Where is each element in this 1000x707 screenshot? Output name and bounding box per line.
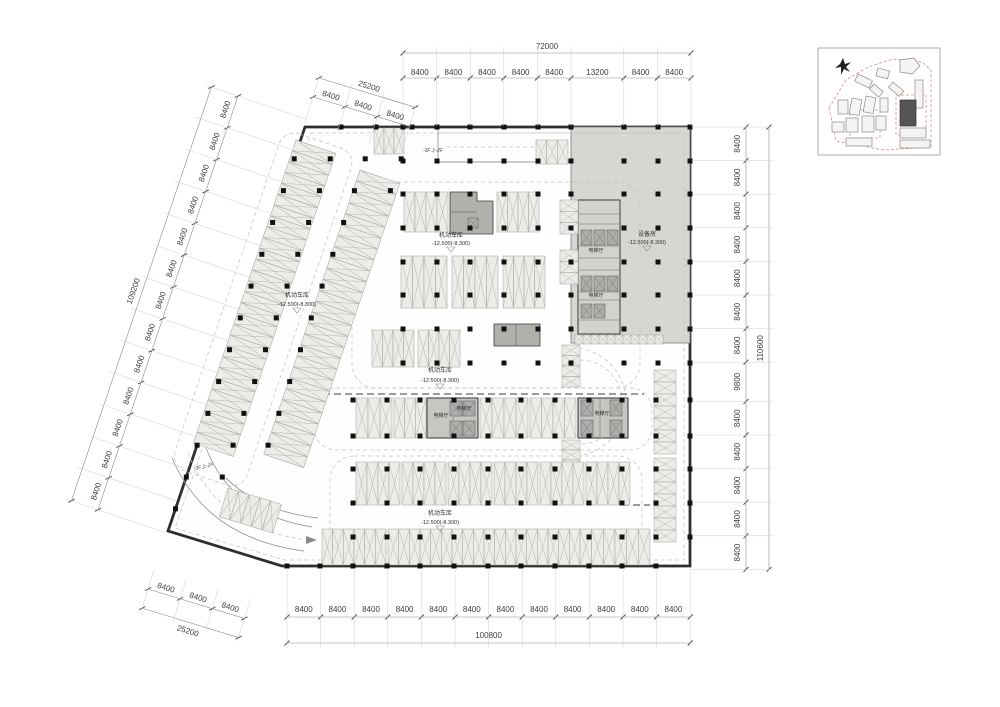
column	[401, 226, 406, 231]
column	[486, 434, 491, 439]
column	[536, 159, 541, 164]
dim-label: 8400	[733, 510, 742, 528]
column	[587, 501, 592, 506]
dim-label: 8400	[733, 543, 742, 561]
column	[519, 398, 524, 403]
column	[341, 220, 346, 225]
column	[656, 159, 661, 164]
dim-label: 8400	[411, 68, 429, 77]
column	[385, 501, 390, 506]
dim-label: 8400	[733, 476, 742, 494]
column	[418, 535, 423, 540]
garage-left-label: 机动车库	[285, 291, 309, 299]
column	[688, 467, 693, 472]
dim-label: 8400	[295, 605, 313, 614]
dim-label: 8400	[478, 68, 496, 77]
dim-label: 8400	[362, 605, 380, 614]
column	[569, 327, 574, 332]
dim-label: 8400	[733, 302, 742, 320]
dim-label: 8400	[733, 442, 742, 460]
elevator-hall-label-3: 电梯厅	[433, 412, 448, 419]
dim-label: 8400	[497, 605, 515, 614]
column	[468, 159, 473, 164]
elevator-hall-label-4: 电梯厅	[456, 405, 471, 412]
elevator-hall-label-1: 电梯厅	[588, 247, 603, 254]
garage-lower-label: 机动车库	[428, 509, 452, 517]
column	[620, 467, 625, 472]
elevator-hall-label-5: 电梯厅	[594, 410, 609, 417]
column	[536, 361, 541, 366]
column	[688, 327, 693, 332]
column	[536, 260, 541, 265]
utility-room-mid	[494, 324, 540, 346]
column	[622, 226, 627, 231]
column	[553, 535, 558, 540]
floorplan-canvas: 8400840084008400840013200840084007200084…	[0, 0, 1000, 707]
column	[401, 192, 406, 197]
garage-upper-label: 机动车库	[439, 231, 463, 239]
column	[252, 379, 257, 384]
dim-label: 25200	[357, 79, 381, 94]
column	[622, 260, 627, 265]
column	[502, 192, 507, 197]
column	[249, 284, 254, 289]
column	[287, 379, 292, 384]
column	[502, 361, 507, 366]
ext-line	[305, 74, 320, 124]
column	[418, 398, 423, 403]
column	[620, 434, 625, 439]
column	[266, 443, 271, 448]
column	[468, 260, 473, 265]
dim-label: 8400	[545, 68, 563, 77]
column	[452, 467, 457, 472]
column	[306, 220, 311, 225]
column	[220, 475, 225, 480]
column	[553, 398, 558, 403]
column	[620, 501, 625, 506]
column	[452, 501, 457, 506]
dim-label: 8400	[665, 68, 683, 77]
column	[656, 226, 661, 231]
column	[351, 501, 356, 506]
column	[502, 159, 507, 164]
column	[468, 293, 473, 298]
column	[298, 347, 303, 352]
column	[351, 467, 356, 472]
column	[569, 192, 574, 197]
column	[536, 293, 541, 298]
garage-lower-level: -12.500(-8.300)	[421, 520, 459, 526]
column	[688, 535, 693, 540]
column	[622, 293, 627, 298]
garage-upper-level: -12.500(-8.300)	[432, 241, 470, 247]
dim-label: 8400	[733, 134, 742, 152]
column	[688, 501, 693, 506]
inset-highlight-building	[900, 100, 916, 126]
column	[654, 398, 659, 403]
column	[351, 398, 356, 403]
column	[502, 327, 507, 332]
dim-label: 8400	[208, 131, 222, 151]
inset-building	[876, 116, 886, 130]
dim-label: 8400	[733, 235, 742, 253]
dim-label: 8400	[733, 168, 742, 186]
column	[519, 564, 524, 569]
column	[569, 159, 574, 164]
column	[587, 535, 592, 540]
column	[195, 443, 200, 448]
column	[276, 411, 281, 416]
column	[654, 501, 659, 506]
column	[688, 434, 693, 439]
bottomleft-dim-group: 84008400840025200	[136, 569, 253, 651]
dim-label: 8400	[89, 481, 103, 501]
column	[263, 347, 268, 352]
column	[468, 192, 473, 197]
column	[688, 398, 693, 403]
inset-building	[900, 140, 930, 148]
column	[385, 434, 390, 439]
ramp-label-top: -3F上-2F	[423, 147, 444, 154]
column	[486, 564, 491, 569]
site-key-inset	[818, 48, 940, 155]
column	[385, 535, 390, 540]
column	[502, 260, 507, 265]
column	[452, 535, 457, 540]
column	[418, 467, 423, 472]
column	[435, 293, 440, 298]
column	[622, 159, 627, 164]
equipment-level: -12.500(-8.300)	[628, 240, 666, 246]
column	[328, 156, 333, 161]
garage-left-level: -12.500(-8.300)	[278, 302, 316, 308]
column	[688, 226, 693, 231]
column	[205, 411, 210, 416]
column	[468, 226, 473, 231]
column	[656, 361, 661, 366]
column	[688, 260, 693, 265]
dim-label: 72000	[536, 42, 559, 51]
column	[259, 252, 264, 257]
column	[401, 293, 406, 298]
inset-building	[838, 100, 848, 114]
column	[401, 327, 406, 332]
equipment-label: 设备房	[638, 230, 656, 238]
column	[399, 156, 404, 161]
column	[688, 159, 693, 164]
column	[292, 156, 297, 161]
floor-plan-page: 8400840084008400840013200840084007200084…	[0, 0, 1000, 707]
column	[435, 226, 440, 231]
column	[468, 361, 473, 366]
column	[536, 226, 541, 231]
column	[620, 398, 625, 403]
column	[227, 347, 232, 352]
dim-label: 8400	[154, 290, 168, 310]
dim-label: 8400	[512, 68, 530, 77]
column	[435, 260, 440, 265]
garage-mid-level: -12.500(-8.300)	[421, 378, 459, 384]
column	[486, 467, 491, 472]
column	[435, 159, 440, 164]
inset-building	[846, 138, 872, 146]
column	[231, 443, 236, 448]
column	[435, 361, 440, 366]
column	[519, 535, 524, 540]
inset-building	[846, 118, 858, 132]
dim-label: 8400	[218, 99, 232, 119]
dim-label: 8400	[665, 605, 683, 614]
column	[351, 564, 356, 569]
column	[285, 284, 290, 289]
column	[587, 564, 592, 569]
dim-line	[71, 87, 211, 501]
dim-label: 8400	[530, 605, 548, 614]
dim-label: 9800	[733, 372, 742, 390]
column	[330, 252, 335, 257]
column	[486, 535, 491, 540]
column	[184, 475, 189, 480]
column	[553, 467, 558, 472]
column	[688, 125, 693, 130]
column	[536, 125, 541, 130]
column	[688, 361, 693, 366]
column	[519, 501, 524, 506]
column	[401, 260, 406, 265]
column	[622, 327, 627, 332]
dim-label: 8400	[396, 605, 414, 614]
column	[502, 226, 507, 231]
dim-label: 109200	[125, 277, 142, 306]
ext-line	[141, 570, 154, 612]
column	[622, 192, 627, 197]
dim-label: 8400	[197, 163, 211, 183]
column	[502, 293, 507, 298]
column	[452, 434, 457, 439]
dim-label: 110600	[756, 335, 765, 362]
ext-line	[67, 499, 166, 533]
column	[553, 564, 558, 569]
column	[587, 434, 592, 439]
column	[654, 535, 659, 540]
column	[569, 260, 574, 265]
column	[622, 361, 627, 366]
column	[216, 379, 221, 384]
column	[418, 501, 423, 506]
dim-label: 8400	[100, 449, 114, 469]
column	[385, 564, 390, 569]
dim-label: 25200	[176, 623, 200, 638]
column	[418, 564, 423, 569]
dim-label: 8400	[121, 386, 135, 406]
column	[238, 315, 243, 320]
column	[274, 315, 279, 320]
column	[452, 398, 457, 403]
column	[285, 564, 290, 569]
column	[435, 125, 440, 130]
inset-building	[880, 98, 888, 112]
dim-label: 8400	[186, 195, 200, 215]
column	[295, 252, 300, 257]
dim-label: 8400	[733, 409, 742, 427]
column	[656, 260, 661, 265]
column	[536, 192, 541, 197]
dim-label: 8400	[631, 605, 649, 614]
column	[486, 398, 491, 403]
column	[688, 293, 693, 298]
dim-label: 8400	[111, 417, 125, 437]
column	[486, 501, 491, 506]
column	[587, 398, 592, 403]
column	[569, 293, 574, 298]
column	[656, 192, 661, 197]
column	[351, 535, 356, 540]
column	[654, 434, 659, 439]
inset-building	[862, 116, 874, 132]
dim-label: 8400	[597, 605, 615, 614]
column	[363, 156, 368, 161]
garage-mid-label: 机动车库	[428, 366, 452, 374]
dim-label: 100800	[475, 631, 502, 640]
column	[468, 327, 473, 332]
column	[656, 293, 661, 298]
column	[401, 361, 406, 366]
column	[569, 226, 574, 231]
column	[587, 467, 592, 472]
column	[620, 564, 625, 569]
column	[656, 125, 661, 130]
column	[388, 188, 393, 193]
column	[317, 188, 322, 193]
column	[435, 192, 440, 197]
dim-label: 8400	[132, 354, 146, 374]
dim-label: 8400	[329, 605, 347, 614]
column	[385, 467, 390, 472]
column	[352, 188, 357, 193]
inset-building	[832, 122, 844, 132]
column	[318, 564, 323, 569]
column	[320, 284, 325, 289]
column	[173, 506, 178, 511]
column	[536, 327, 541, 332]
column	[654, 467, 659, 472]
column	[553, 434, 558, 439]
column	[351, 434, 356, 439]
dim-label: 8400	[429, 605, 447, 614]
column	[519, 434, 524, 439]
column	[620, 535, 625, 540]
column	[452, 564, 457, 569]
column	[270, 220, 275, 225]
column	[688, 192, 693, 197]
dim-label: 8400	[632, 68, 650, 77]
column	[385, 398, 390, 403]
column	[435, 327, 440, 332]
column	[418, 434, 423, 439]
dim-label: 8400	[445, 68, 463, 77]
column	[569, 361, 574, 366]
dim-label: 8400	[165, 258, 179, 278]
column	[309, 315, 314, 320]
dim-label: 8400	[143, 322, 157, 342]
dim-label: 8400	[175, 226, 189, 246]
elevator-hall-label-2: 电梯厅	[588, 292, 603, 299]
dim-label: 8400	[733, 202, 742, 220]
dim-label: 8400	[733, 269, 742, 287]
dim-label: 8400	[463, 605, 481, 614]
dim-label: 8400	[564, 605, 582, 614]
inset-building	[900, 128, 926, 138]
column	[519, 467, 524, 472]
column	[281, 188, 286, 193]
column	[553, 501, 558, 506]
dim-label: 8400	[733, 336, 742, 354]
column	[241, 411, 246, 416]
column	[654, 564, 659, 569]
column	[656, 327, 661, 332]
dim-label: 13200	[586, 68, 609, 77]
